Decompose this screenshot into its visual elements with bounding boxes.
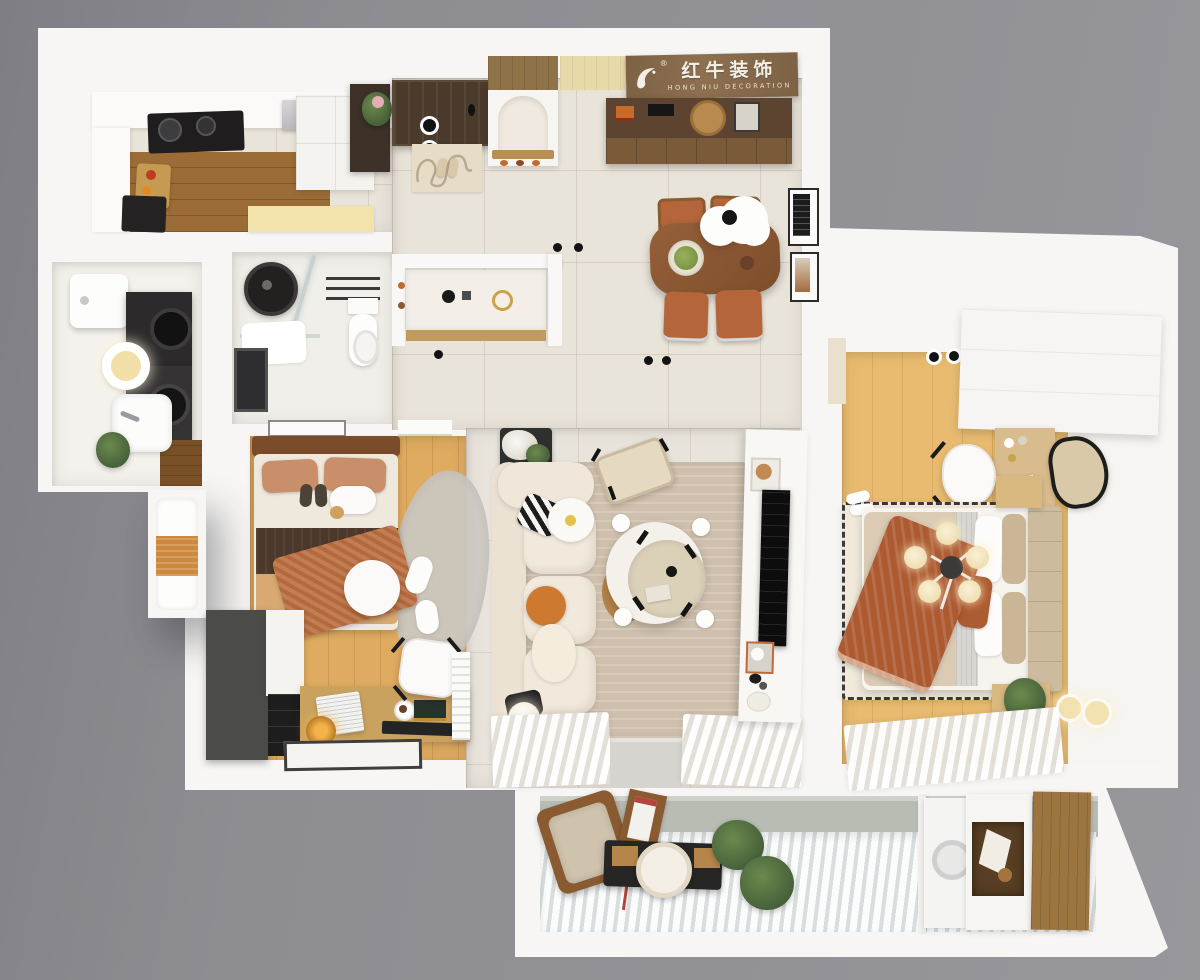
tv-screen xyxy=(758,490,790,647)
master-pillow-beige-1 xyxy=(1002,514,1026,584)
bull-icon xyxy=(632,63,661,92)
brand-text-block: 红牛装饰 HONG NIU DECORATION xyxy=(667,60,792,92)
dining-vase xyxy=(740,256,754,270)
kitchen-runner-mat xyxy=(248,206,374,232)
hall-spotlight-4 xyxy=(644,356,653,365)
tv-decor-pebble-2 xyxy=(759,682,767,690)
brand-name-en: HONG NIU DECORATION xyxy=(668,81,792,92)
wash-nook-wall-right xyxy=(548,254,562,346)
sideboard-art-frame xyxy=(734,102,760,132)
balcony-plant-2 xyxy=(740,856,794,910)
registered-mark: ® xyxy=(660,59,668,68)
sputnik-bulb-5 xyxy=(966,546,989,569)
pillow-cream-blob xyxy=(532,624,576,682)
kitchen-stove-unit xyxy=(121,195,166,233)
hall-spotlight-5 xyxy=(662,356,671,365)
brand-name-cn: 红牛装饰 xyxy=(681,60,777,81)
entry-doormat xyxy=(412,144,482,192)
cooking-pot xyxy=(158,118,182,142)
desk-console xyxy=(414,700,446,721)
study-shelf-dark xyxy=(206,610,268,760)
entry-shoes-dot-2 xyxy=(516,160,524,166)
toilet-tank xyxy=(348,298,378,314)
bench-round-tray xyxy=(636,842,692,898)
vanity-counter xyxy=(406,270,546,330)
desk-speaker-bar xyxy=(382,721,454,737)
wash-nook-wall-left xyxy=(392,254,405,346)
vanity-cosmetic-2 xyxy=(1018,436,1027,445)
heater-dial xyxy=(80,296,89,305)
sideboard-round-tray xyxy=(690,100,726,136)
towel-rack xyxy=(326,274,380,300)
niche-wood-ball xyxy=(998,868,1012,882)
bedroom2-radiator xyxy=(452,652,470,740)
entry-bench-seat xyxy=(492,150,554,159)
coffee-table-foot-4 xyxy=(696,610,714,628)
balcony-wood-door xyxy=(1031,792,1091,931)
doormat-squiggle xyxy=(412,144,482,192)
tv-decor-leaf-dish xyxy=(746,691,771,712)
vanity-cosmetic-3 xyxy=(1008,454,1016,462)
living-curtain-right xyxy=(681,714,803,788)
floorplan-render: ® 红牛装饰 HONG NIU DECORATION xyxy=(0,0,1200,980)
vanity-soap xyxy=(462,291,471,300)
laundry-plant xyxy=(96,432,130,468)
bathroom-window xyxy=(234,348,268,412)
master-pillow-beige-2 xyxy=(1002,592,1026,664)
bedroom2-wall-art xyxy=(268,420,346,437)
balcony-door-gap xyxy=(610,742,682,788)
desk-mug-coffee xyxy=(399,705,407,713)
vanity-faucet xyxy=(442,290,455,303)
table-decor-dot xyxy=(666,566,677,577)
sputnik-bulb-1 xyxy=(936,522,959,545)
bed2-pompom xyxy=(330,506,344,519)
toilet-seat xyxy=(353,330,379,364)
cabinet-top-maple xyxy=(560,56,626,90)
fruit-grapes xyxy=(674,246,698,270)
vanity-candle-1 xyxy=(398,282,405,289)
wash-nook-wall-top xyxy=(392,254,562,268)
kitchen-plant-flowers xyxy=(372,96,384,108)
vanity-candle-2 xyxy=(398,302,405,309)
bed2-slipper-1 xyxy=(299,484,313,508)
water-heater xyxy=(70,274,128,328)
bed2-slipper-2 xyxy=(314,484,327,508)
cooking-pan xyxy=(196,116,216,136)
rain-shower-head xyxy=(244,262,298,316)
vegetable-orange xyxy=(142,186,151,195)
pillow-flower-center xyxy=(565,515,576,526)
cabinet-top-walnut xyxy=(488,56,558,90)
master-headboard xyxy=(1028,506,1062,692)
cloud-pendant-lobe-3 xyxy=(738,214,770,246)
master-wardrobe xyxy=(958,309,1162,436)
master-vanity-chair xyxy=(942,444,996,506)
bed2-headboard xyxy=(252,436,400,456)
nightstand-top xyxy=(996,476,1042,508)
coffee-table-foot-1 xyxy=(612,514,630,532)
vanity-cosmetic-1 xyxy=(1004,438,1014,448)
vegetable-red xyxy=(146,170,156,180)
coffee-table-foot-2 xyxy=(692,518,710,536)
master-door-opening xyxy=(828,338,846,404)
wall-sconce-1 xyxy=(1056,694,1084,722)
sideboard-books-orange xyxy=(616,106,634,118)
master-spotlight-1 xyxy=(926,349,942,365)
dining-chair-bottom-right xyxy=(715,289,763,342)
washer-drum xyxy=(150,308,192,350)
hall-spotlight-3 xyxy=(434,350,443,359)
entry-bench-niche xyxy=(498,96,548,152)
sideboard-tray-black xyxy=(648,104,674,116)
wall-sconce-2 xyxy=(1082,698,1112,728)
window-seat-blanket xyxy=(156,536,198,576)
laundry-pendant-glow xyxy=(111,351,141,381)
dining-chair-bottom-left xyxy=(663,291,709,342)
hall-spotlight-1 xyxy=(553,243,562,252)
entry-spotlight-1 xyxy=(420,116,439,135)
pillow-orange xyxy=(526,586,566,626)
coffee-table-foot-3 xyxy=(614,608,632,626)
hall-spotlight-2 xyxy=(574,243,583,252)
bedroom2-door xyxy=(398,420,452,436)
entry-shoes-dot-1 xyxy=(500,160,508,166)
dining-wall-frame-2-art xyxy=(795,258,810,292)
sputnik-bulb-3 xyxy=(918,580,941,603)
sputnik-bulb-2 xyxy=(904,546,927,569)
door-handle xyxy=(468,104,475,116)
brand-logo-board: ® 红牛装饰 HONG NIU DECORATION xyxy=(626,52,799,100)
study-floor-mat xyxy=(284,739,423,771)
bedroom2-stool xyxy=(344,560,400,616)
sideboard-front-doors xyxy=(606,138,792,164)
sputnik-bulb-4 xyxy=(958,580,981,603)
shower-head-center xyxy=(262,280,272,290)
tv-media-wall xyxy=(738,429,808,723)
cloud-pendant-canopy xyxy=(722,210,737,225)
dining-wall-frame-1-art xyxy=(793,194,810,236)
bench-tray-wood-1 xyxy=(612,846,638,866)
sputnik-hub xyxy=(940,556,963,579)
entry-door xyxy=(392,80,490,146)
living-curtain-left xyxy=(491,712,611,788)
vanity-shelf xyxy=(406,330,546,341)
study-cabinet-white xyxy=(266,610,304,696)
entry-shoes-dot-3 xyxy=(532,160,540,166)
gold-towel-ring xyxy=(492,290,513,311)
